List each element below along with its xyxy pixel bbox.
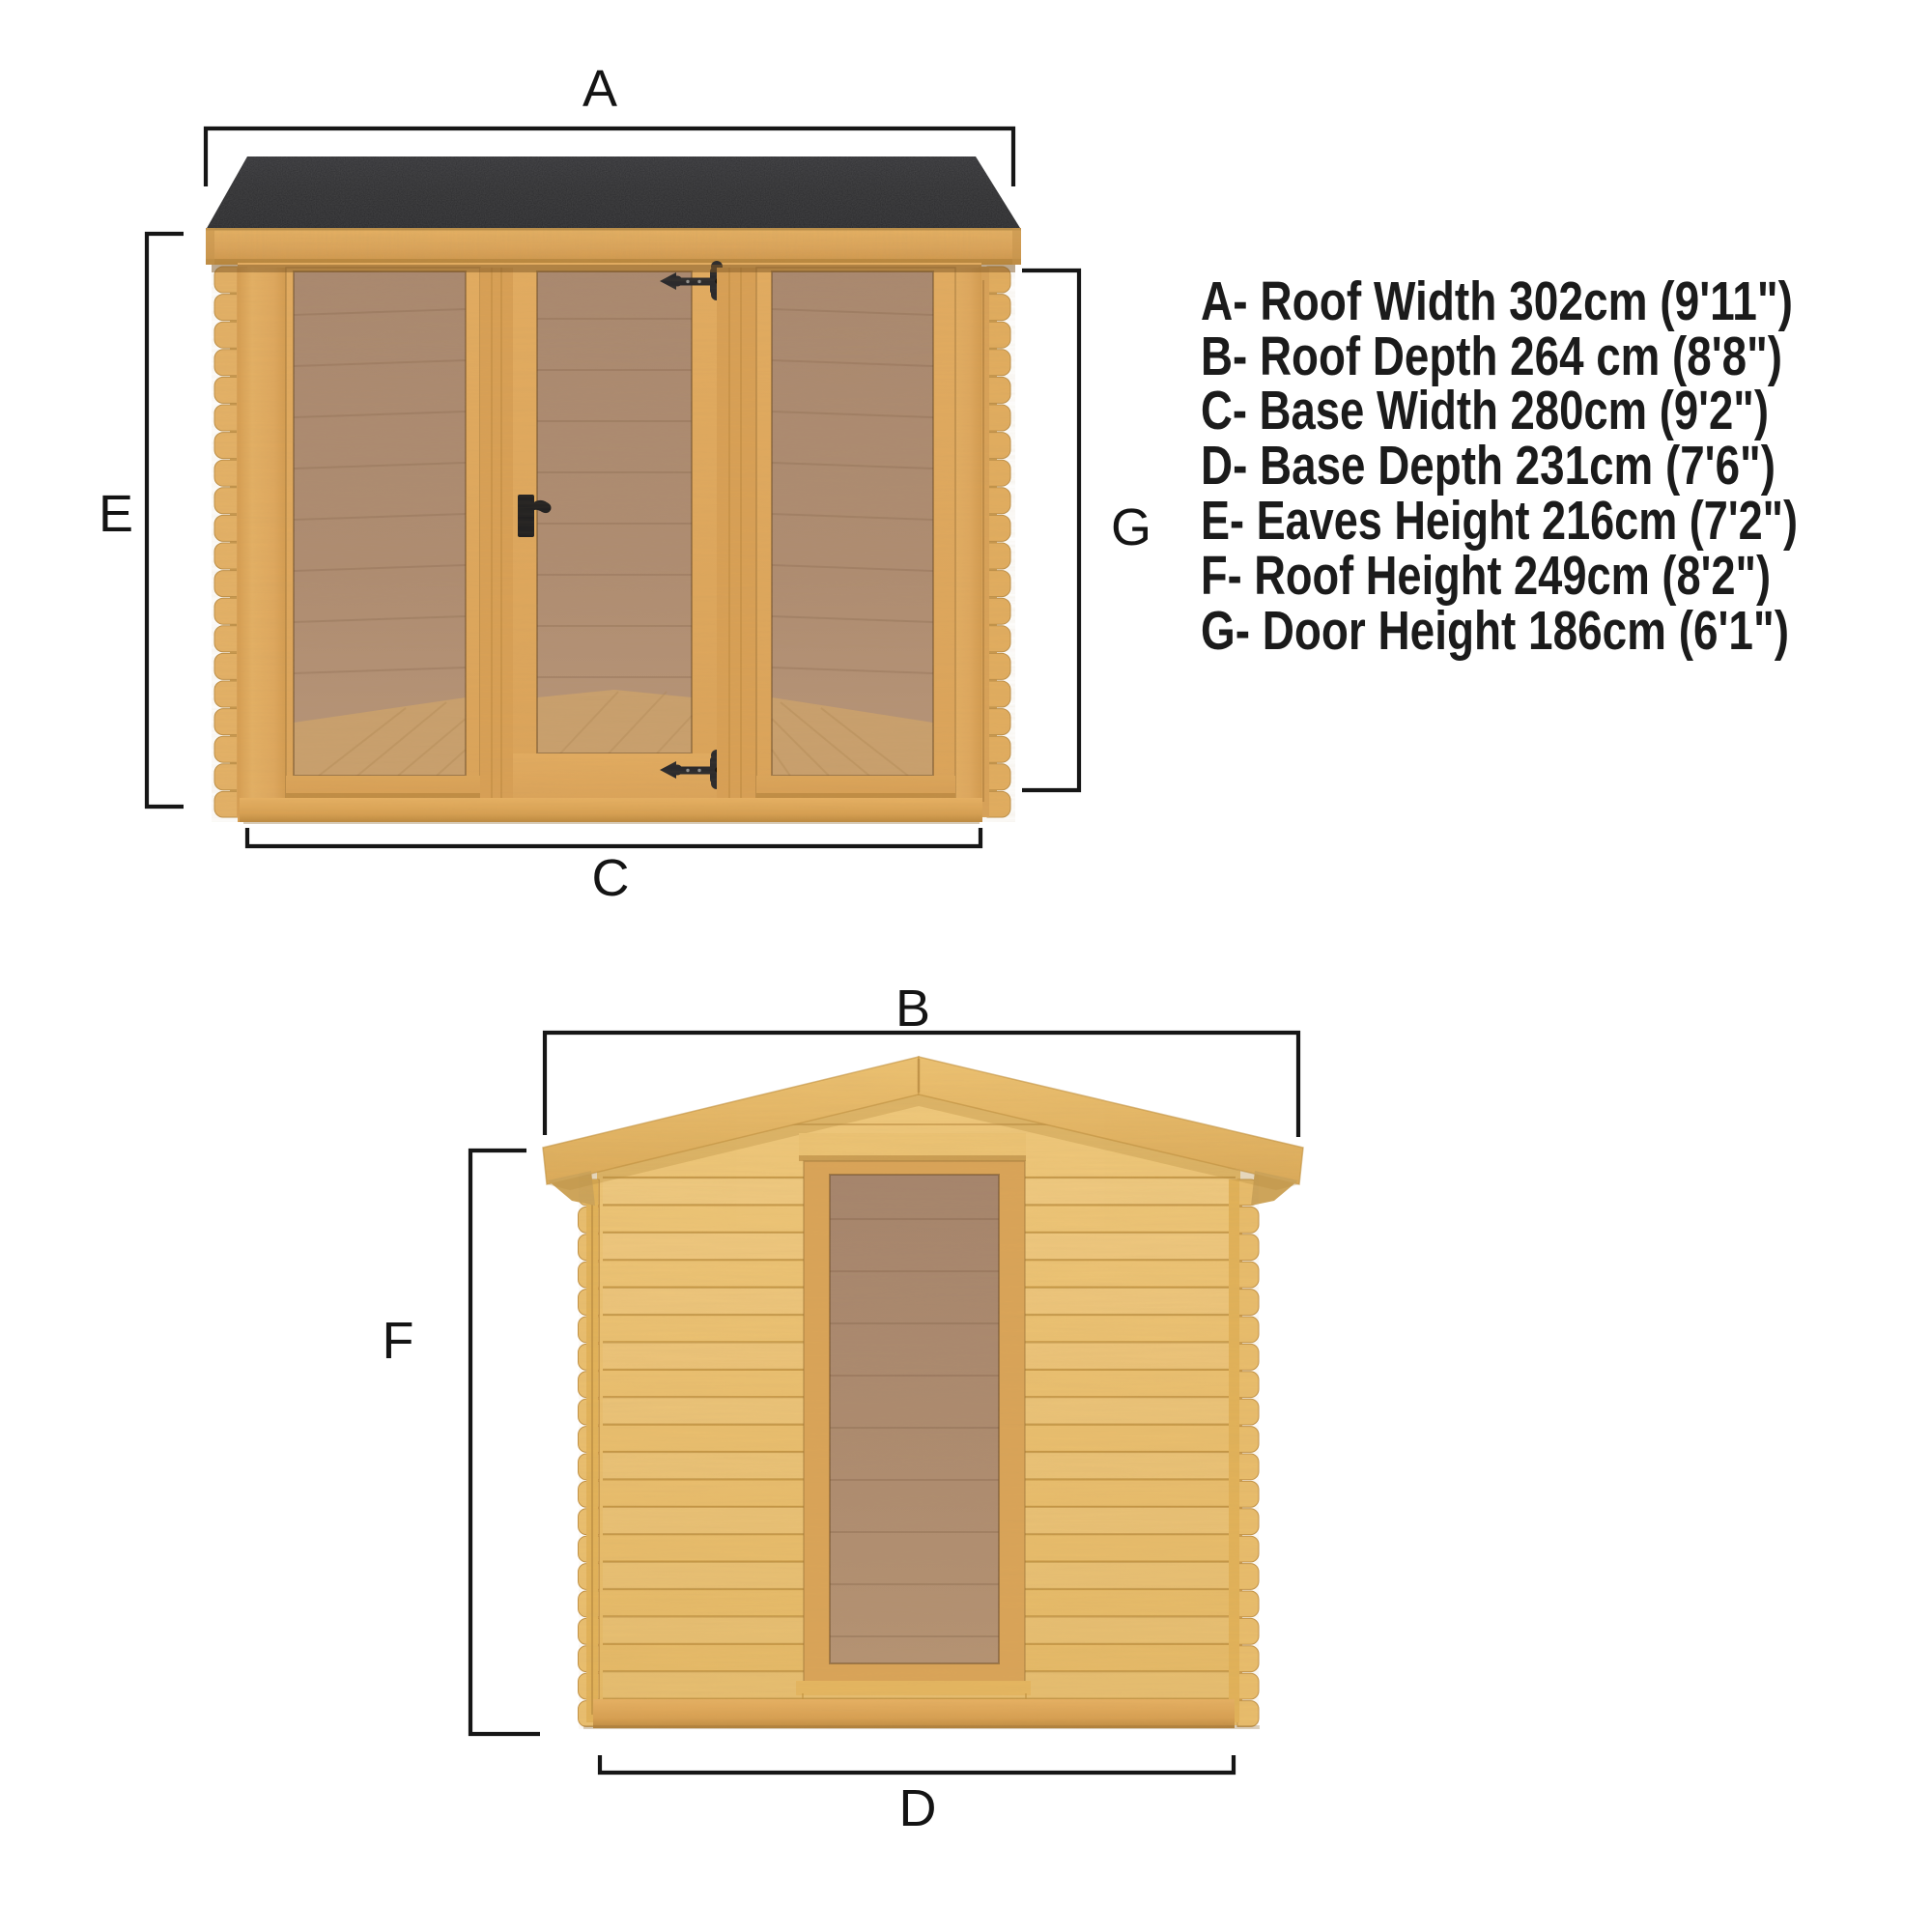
svg-text:D: D (899, 1779, 937, 1837)
svg-text:F: F (383, 1312, 414, 1370)
svg-text:E- Eaves Height 216cm (7'2"): E- Eaves Height 216cm (7'2") (1201, 490, 1798, 552)
svg-text:A: A (582, 60, 617, 118)
svg-text:B- Roof Depth 264 cm (8'8"): B- Roof Depth 264 cm (8'8") (1201, 326, 1782, 387)
svg-text:E: E (99, 485, 133, 543)
svg-text:G- Door Height 186cm (6'1"): G- Door Height 186cm (6'1") (1201, 600, 1789, 662)
svg-text:A- Roof Width 302cm (9'11"): A- Roof Width 302cm (9'11") (1201, 270, 1793, 332)
svg-text:G: G (1111, 498, 1151, 556)
svg-text:C- Base Width 280cm (9'2"): C- Base Width 280cm (9'2") (1201, 380, 1769, 441)
svg-text:D- Base Depth 231cm (7'6"): D- Base Depth 231cm (7'6") (1201, 435, 1776, 497)
svg-text:F- Roof Height 249cm (8'2"): F- Roof Height 249cm (8'2") (1201, 545, 1771, 607)
svg-text:C: C (592, 849, 630, 907)
svg-text:B: B (895, 980, 930, 1037)
